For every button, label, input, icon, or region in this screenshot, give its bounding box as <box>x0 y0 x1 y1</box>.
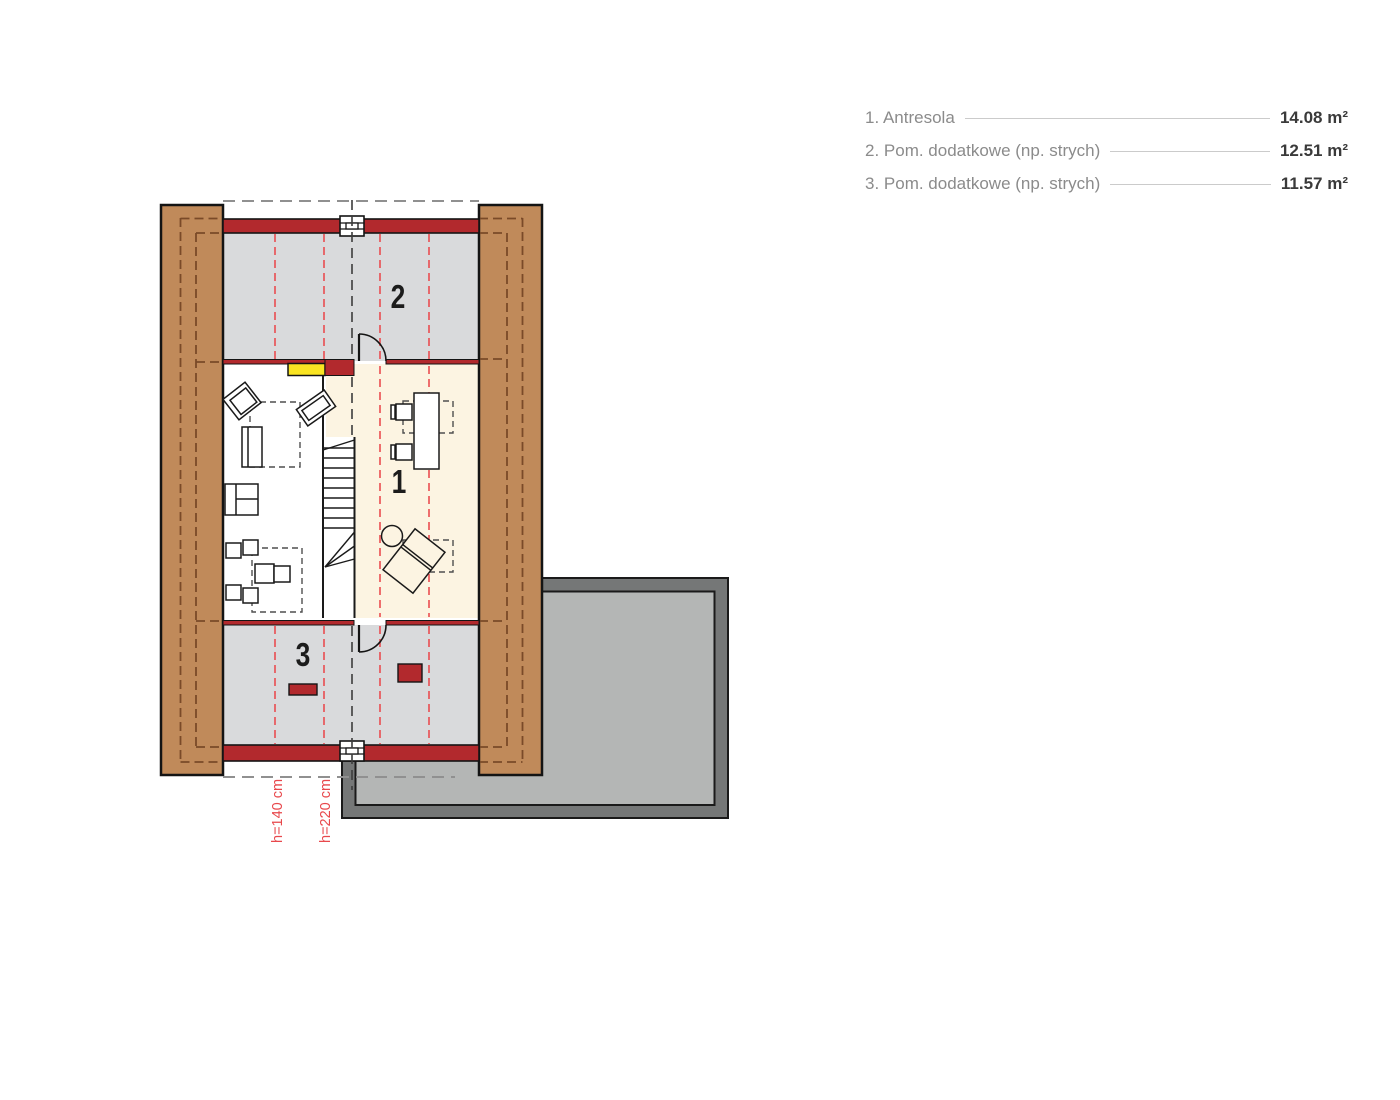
chimney-block <box>289 684 317 695</box>
room-number-1: 1 <box>392 464 407 500</box>
side-table-round <box>382 526 403 547</box>
cabinet <box>242 427 262 467</box>
room-strych-top <box>223 233 479 361</box>
sofa <box>225 484 258 515</box>
room-number-2: 2 <box>391 279 406 315</box>
desk-chair <box>391 404 412 420</box>
room-strych-bottom <box>223 625 479 745</box>
partition-bottom-left <box>223 621 354 626</box>
height-label-h220: h=220 cm <box>318 779 334 843</box>
room-number-3: 3 <box>296 637 311 673</box>
partition-top-right <box>386 360 479 365</box>
chimney-block <box>398 664 422 682</box>
height-annotations: h=140 cm h=220 cm <box>270 779 334 843</box>
page: 1. Antresola 14.08 m² 2. Pom. dodatkowe … <box>0 0 1400 1100</box>
partition-yellow-block <box>288 364 325 376</box>
roof-wall-right <box>479 205 542 775</box>
partition-bottom <box>223 621 479 626</box>
roof-wall-left <box>161 205 223 775</box>
desk-chair <box>391 444 412 460</box>
partition-bottom-right <box>386 621 479 626</box>
desk <box>414 393 439 469</box>
height-label-h140: h=140 cm <box>270 779 286 843</box>
floor-plan: 2 1 3 h=140 cm h=220 cm <box>0 0 1400 1100</box>
partition-red-block <box>325 360 354 376</box>
